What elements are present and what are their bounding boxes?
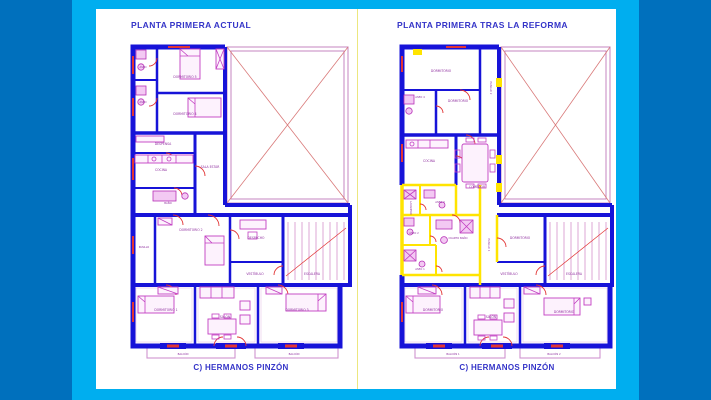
slide-background: PLANTA PRIMERA ACTUAL PLANTA PRIMERA TRA… [0,0,711,400]
room-label: PASILLO [139,245,149,249]
room-label: BALCÓN [289,351,300,356]
room-label: ASEO [139,100,146,104]
room-label: LAVADERO [409,201,413,215]
plan-title-right: PLANTA PRIMERA TRAS LA REFORMA [397,20,568,30]
room-label: ESCALERA [304,272,321,276]
room-label: DORMITORIO [554,310,575,314]
room-label: DORMITORIO [510,236,531,240]
room-label: PASILLO 1 [487,239,491,252]
room-label: SALÓN [486,314,497,319]
room-label: COCINA [155,168,168,172]
room-label: DORMITORIO 4 [173,112,196,116]
room-label: COCINA [423,159,436,163]
room-label: DORMITORIO 5 [173,75,196,79]
floorplan-right-drawing: DORMITORIO ASEO 4 DORMITORIO PASILLO 2 C… [396,40,618,360]
room-label: ASEO 3 [435,200,445,204]
patio-lightwell-right [501,47,610,203]
room-label: VESTÍBULO [500,271,518,276]
room-label: DORMITORIO 1 [154,308,177,312]
room-label: ASEO 2 [409,231,419,235]
room-label: ASEO 1 [415,267,425,271]
room-label: DORMITORIO [423,308,444,312]
plan-title-left: PLANTA PRIMERA ACTUAL [131,20,251,30]
room-label: DORMITORIO 3 [285,308,308,312]
page-divider-line [357,9,358,389]
patio-lightwell-left [227,47,348,203]
room-label: BALCÓN 1 [446,351,460,356]
plan-caption-left: C) HERMANOS PINZÓN [128,363,354,372]
room-label: BALCÓN [178,351,189,356]
room-label: DORMITORIO [448,99,469,103]
room-label: PASILLO 2 [489,82,493,95]
room-label: BALCÓN 2 [547,351,561,356]
room-label: DESPACHO [248,236,266,240]
floorplan-left-drawing: ASEO DORMITORIO 5 ASEO DORMITORIO 4 DESP… [128,40,354,360]
room-label: ASEO 4 [415,95,425,99]
room-label: DORMITORIO [431,69,452,73]
room-label: SALA ESTAR [201,165,221,169]
room-label: ASEO [139,65,146,69]
room-label: DESPENSA [155,142,172,146]
room-label: CUARTO BAÑO [448,235,467,240]
room-label: SALÓN [220,314,231,319]
room-label: ESCALERA [566,272,583,276]
plan-caption-right: C) HERMANOS PINZÓN [396,363,618,372]
room-label: COMEDOR [469,185,486,189]
room-label: VESTÍBULO [246,271,264,276]
room-label: DORMITORIO 2 [179,228,202,232]
